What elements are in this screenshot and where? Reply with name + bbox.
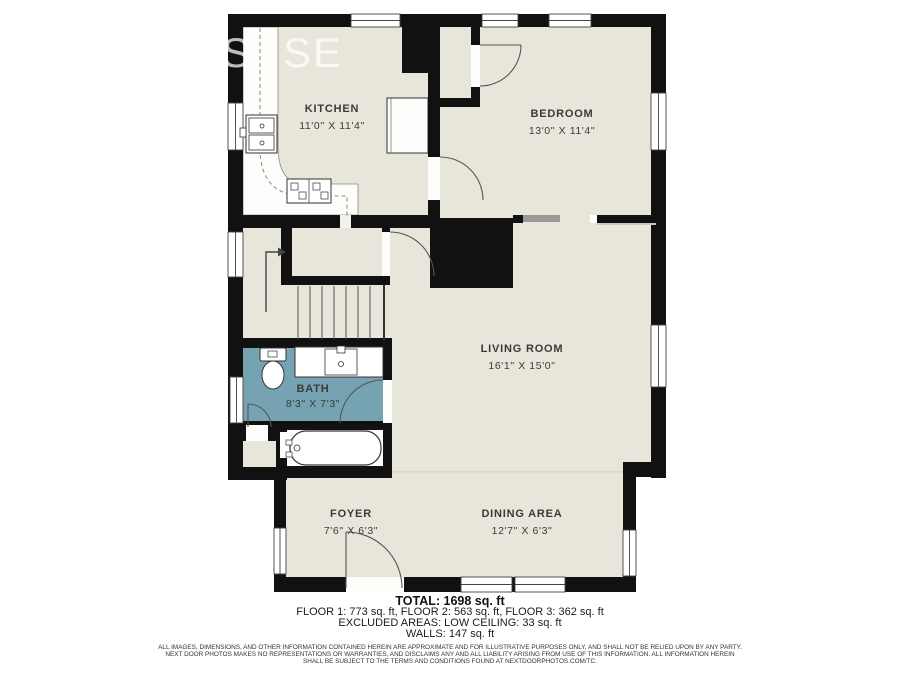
bath-vanity — [295, 346, 383, 377]
wall-bottom — [274, 577, 636, 592]
foyer-dims: 7'6" X 6'3" — [324, 525, 378, 537]
door-gap-kitchen-bedroom — [428, 157, 440, 200]
wall-bath-bottom — [278, 421, 383, 430]
disclaimer-line: ALL IMAGES, DIMENSIONS, AND OTHER INFORM… — [0, 644, 900, 651]
wall-mid-right-a — [513, 215, 523, 223]
area-summary: TOTAL: 1698 sq. ft FLOOR 1: 773 sq. ft, … — [0, 595, 900, 640]
door-gap-entry — [346, 577, 404, 592]
landing-wall-right — [382, 215, 390, 232]
landing-wall-left — [281, 215, 292, 285]
foyer-label: FOYER — [330, 508, 372, 520]
toilet — [260, 348, 286, 389]
alcove-door-gap — [246, 425, 268, 441]
bedroom-label: BEDROOM — [530, 108, 593, 120]
wall-right — [651, 14, 666, 478]
opening-kitchen-hall — [340, 215, 351, 228]
landing-wall-bottom — [281, 276, 390, 285]
closet-wall-bottom — [433, 98, 480, 107]
fireplace — [430, 218, 513, 288]
disclaimer-line: NEXT DOOR PHOTOS MAKES NO REPRESENTATION… — [0, 651, 900, 658]
floor-plan-page: KITCHEN 11'0" X 11'4" BEDROOM 13'0" X 11… — [0, 0, 900, 675]
door-gap-bath — [383, 380, 392, 423]
disclaimer: ALL IMAGES, DIMENSIONS, AND OTHER INFORM… — [0, 644, 900, 665]
floor-plan-drawing: KITCHEN 11'0" X 11'4" BEDROOM 13'0" X 11… — [0, 0, 900, 675]
wall-areas: WALLS: 147 sq. ft — [0, 629, 900, 640]
wall-shadow-line — [597, 223, 656, 225]
disclaimer-line: SHALL BE SUBJECT TO THE TERMS AND CONDIT… — [0, 658, 900, 665]
bathtub — [286, 431, 381, 465]
door-gap-landing — [382, 232, 390, 276]
dining-area-label: DINING AREA — [481, 508, 562, 520]
kitchen-label: KITCHEN — [305, 103, 360, 115]
wall-foyer-top — [286, 466, 392, 478]
floor-transition-line — [392, 471, 623, 473]
alcove-floor — [243, 441, 276, 467]
chimney — [402, 17, 433, 73]
stairs-edge — [383, 285, 385, 340]
wall-top — [228, 14, 666, 27]
opening-jamb — [590, 215, 597, 223]
bath-label: BATH — [297, 383, 330, 395]
closet-wall-right-a — [471, 22, 480, 45]
refrigerator — [387, 98, 428, 153]
wall-bedroom-bottom — [597, 215, 666, 223]
kitchen-sink — [240, 115, 277, 153]
living-room-label: LIVING ROOM — [481, 343, 564, 355]
opening-bar-bedroom — [523, 215, 560, 222]
kitchen-dims: 11'0" X 11'4" — [299, 120, 365, 132]
dining-area-dims: 12'7" X 6'3" — [492, 525, 553, 537]
bath-dims: 8'3" X 7'3" — [286, 398, 340, 410]
living-room-dims: 16'1" X 15'0" — [488, 360, 555, 372]
watermark-partial-letter: S — [222, 29, 252, 76]
door-gap-closet — [471, 45, 480, 87]
watermark-text: SE — [283, 29, 343, 76]
bedroom-dims: 13'0" X 11'4" — [529, 125, 595, 137]
stove — [287, 179, 331, 203]
wall-mid-center — [351, 215, 430, 228]
